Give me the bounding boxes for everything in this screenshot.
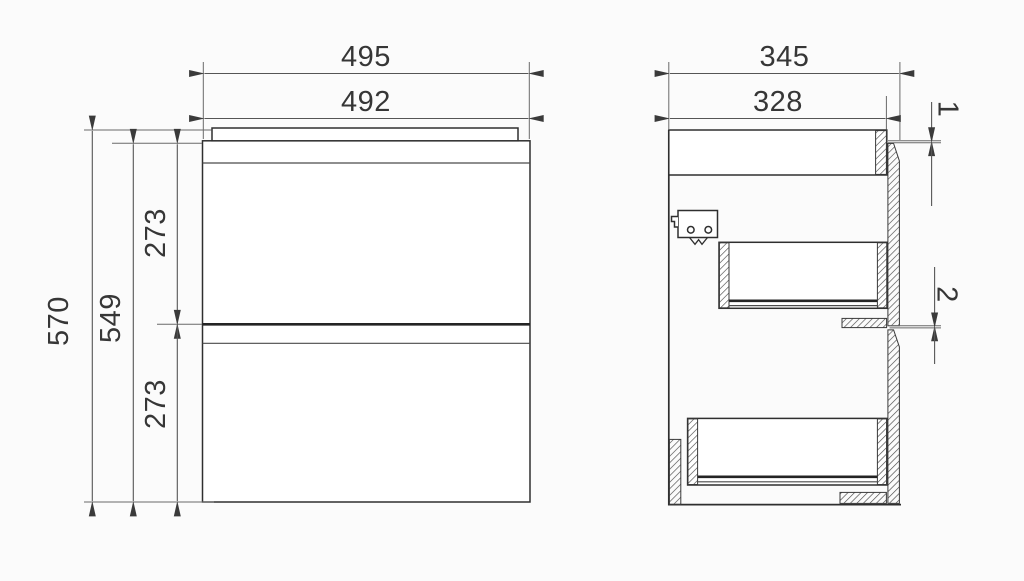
drawer-front-panel-hatched: [877, 419, 887, 485]
dim-273-upper-label: 273: [140, 208, 172, 258]
dim-492-label: 492: [341, 86, 391, 118]
top-panel-section: [669, 130, 887, 175]
technical-drawing: 495 492 570 549 273 273: [0, 0, 1024, 581]
middle-rail-hatched: [842, 318, 887, 327]
carcass-front-outline: [203, 141, 531, 502]
drawer-box-outline: [688, 418, 887, 485]
clip-roller: [705, 227, 712, 234]
drawer-box-outline: [719, 242, 887, 308]
dim-495-label: 495: [341, 41, 391, 73]
dim-345-label: 345: [760, 41, 810, 73]
upper-drawer-front-section: [888, 144, 900, 326]
drawer-front-panel-hatched: [877, 243, 887, 308]
top-panel-hatched-cap: [876, 131, 887, 175]
upper-drawer-box: [719, 242, 887, 308]
lower-drawer-box: [688, 418, 887, 485]
side-view: 345 328 1 2: [669, 41, 964, 505]
dim-1-label: 1: [932, 101, 964, 118]
dim-2-label: 2: [931, 286, 963, 303]
dim-570-label: 570: [43, 296, 75, 346]
back-panel-hatched: [669, 439, 680, 504]
bottom-panel-hatched: [840, 492, 886, 503]
clip-body: [678, 211, 718, 238]
drawer-back-hatched: [688, 419, 698, 485]
dim-328-label: 328: [753, 86, 803, 118]
drawing-canvas: 495 492 570 549 273 273: [0, 0, 1024, 581]
lower-drawer-front-section: [888, 330, 900, 504]
drawer-back-hatched: [719, 243, 729, 308]
front-view: 495 492 570 549 273 273: [43, 41, 530, 502]
soft-close-clip-icon: [672, 211, 718, 245]
clip-roller: [688, 227, 695, 234]
dim-549-label: 549: [95, 293, 127, 343]
dim-273-lower-label: 273: [140, 379, 172, 429]
dim-gap-2: 2: [890, 267, 963, 364]
clip-tab: [672, 217, 679, 228]
clip-spring: [690, 238, 708, 245]
countertop-front: [212, 128, 518, 141]
